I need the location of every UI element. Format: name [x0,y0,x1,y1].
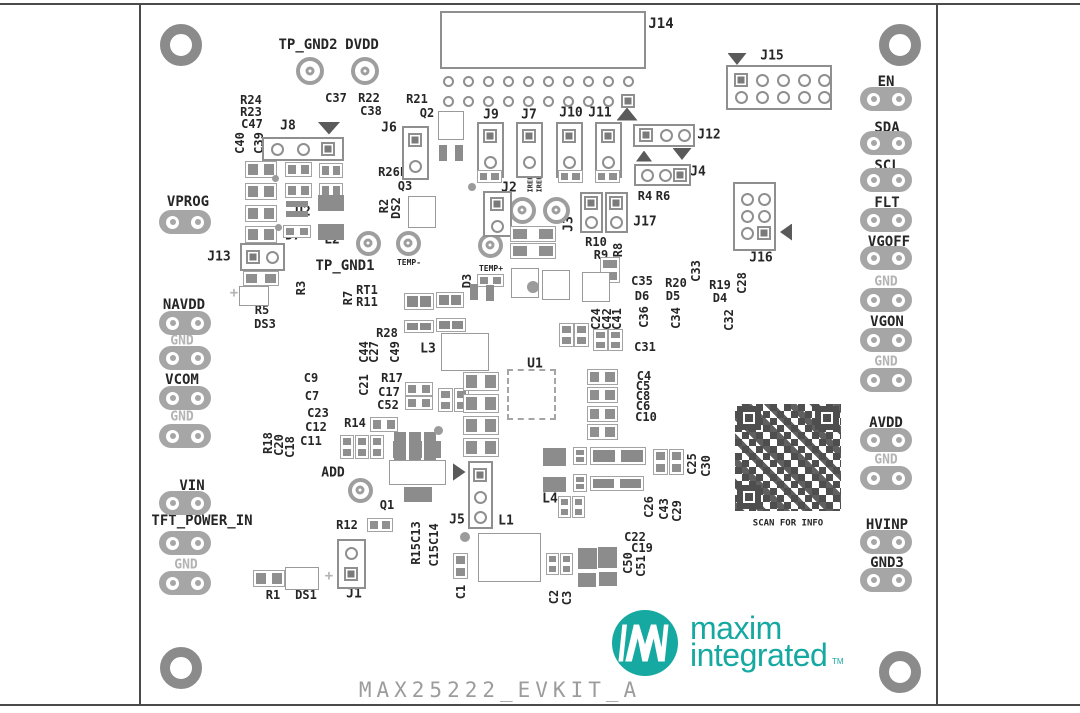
pad-hole [892,137,905,150]
silkscreen-label: R19 [709,279,731,291]
silkscreen-label: + [230,286,238,300]
pin-hole [602,156,615,169]
silkscreen-label: C36 [638,306,650,328]
smd-footprint [370,435,384,459]
smd-footprint [340,435,354,459]
silkscreen-label: TP_GND1 [315,259,374,273]
pad-hole [867,334,880,347]
smd-footprint [405,396,433,410]
smd-pad [486,285,494,301]
test-pad [860,208,912,232]
smd-footprint [453,553,468,579]
smd-pad [409,432,421,460]
smd-footprint [463,372,499,391]
silkscreen-label: C47 [241,118,263,130]
pad-hole [191,497,204,510]
pin-hole [798,91,811,104]
pad-hole [867,174,880,187]
silkscreen-label: R28 [376,327,398,339]
smd-footprint [559,323,574,347]
silkscreen-label: DS1 [295,589,317,601]
silkscreen-label: VPROG [167,195,209,209]
marker-triangle-icon [780,224,792,241]
silkscreen-label: D4 [713,292,727,304]
silkscreen-label: C15C14 [428,523,440,566]
pin-hole [758,193,771,206]
smd-pad [286,201,308,207]
smd-pad [424,432,436,460]
pin-hole [818,74,831,87]
via-ring [348,478,373,503]
pin-hole [583,96,594,107]
silkscreen-label: Q2 [420,107,434,119]
smd-pad [455,145,463,161]
pad-hole [867,434,880,447]
pin-hole [271,143,284,156]
smd-footprint [405,382,433,396]
pad-hole [166,352,179,365]
pad-hole [191,537,204,550]
silkscreen-label: C18 [284,436,296,458]
maxim-logo-icon [612,610,678,676]
marker-triangle-icon [728,53,747,65]
pin-hole [443,76,454,87]
silkscreen-label: J14 [648,17,673,31]
silkscreen-label: C11 [300,435,322,447]
smd-footprint [573,447,587,465]
pin-hole [660,129,673,142]
silkscreen-label: R11 [356,296,378,308]
smd-footprint [573,474,587,492]
pad-hole [191,392,204,405]
pin1-square [483,129,497,143]
pin1-square [757,226,771,240]
pad-hole [867,472,880,485]
pin-hole [603,76,614,87]
qr-finder-icon [815,406,839,430]
smd-footprint [593,329,608,351]
smd-pad [318,224,344,240]
silkscreen-label: C21 [358,374,370,396]
silkscreen-label: DS2 [390,197,402,219]
pad-hole [892,574,905,587]
silkscreen-label: C40 [234,132,246,154]
silkscreen-label: R10 [585,236,607,248]
test-pad [159,311,211,335]
pin-hole [543,96,554,107]
smd-capacitor [590,447,646,465]
silkscreen-label: TP_GND2 [278,38,337,52]
silkscreen-label: C29 [671,500,683,522]
test-pad [159,571,211,595]
silkscreen-label: GND [874,276,897,289]
smd-footprint [285,162,312,177]
logo-word-integrated: integrated [690,639,827,671]
silkscreen-label: C49 [389,341,401,363]
smd-pad [470,284,478,300]
pin-hole [659,169,672,182]
silkscreen-label: L1 [498,515,514,528]
pin1-square [734,73,748,87]
pin1-square [601,129,615,143]
pin-hole [345,547,358,560]
pin-hole [443,96,454,107]
silkscreen-label: J7 [521,109,537,122]
silkscreen-label: C32 [723,309,735,331]
pin1-square [673,168,687,182]
pin1-square [473,468,487,482]
test-pad [860,568,912,592]
test-pad [159,424,211,448]
smd-footprint [370,417,398,432]
pin-hole [266,251,279,264]
test-pad [159,386,211,410]
marker-triangle-icon [453,463,466,481]
marker-triangle-icon [318,122,341,135]
smd-footprint [572,496,585,518]
maxim-logo: maxim integrated TM [608,606,868,681]
logo-trademark: TM [832,658,844,666]
silkscreen-label: TEMP+ [479,265,503,273]
smd-capacitor [436,292,464,308]
smd-footprint [245,183,277,200]
board-edge-bottom [0,704,1080,706]
smd-footprint [283,225,311,238]
pin-hole [474,511,487,524]
silkscreen-label: L3 [420,343,436,356]
silkscreen-label: J16 [749,252,772,265]
pcb-board: maxim integrated TM MAX25222_EVKIT_A TP_… [0,0,1080,713]
component-outline [542,270,570,300]
silkscreen-label: C2 [548,590,560,604]
pin-hole [741,210,754,223]
pad-hole [892,252,905,265]
test-pad [159,346,211,370]
pin1-square [522,129,536,143]
pad-hole [867,536,880,549]
smd-pad [394,432,406,460]
pin1-square [246,250,260,264]
silkscreen-label: DS3 [254,318,276,330]
silkscreen-label: C25 [686,453,698,475]
component-outline [438,111,464,140]
silkscreen-label: J12 [697,129,720,142]
pin-hole [735,91,748,104]
pad-hole [191,430,204,443]
silkscreen-label: GND [170,411,193,424]
pad-hole [892,214,905,227]
silkscreen-label: C51 [635,555,647,577]
via-ring [356,231,381,256]
pin-hole [603,96,614,107]
pad-hole [892,334,905,347]
pin-hole [758,210,771,223]
pin-hole [563,156,576,169]
component-outline [239,286,269,306]
silkscreen-label: J10 [559,107,582,120]
pin-hole [756,74,769,87]
pad-hole [892,472,905,485]
test-pad [159,491,211,515]
smd-footprint [355,435,369,459]
silkscreen-label: L4 [542,493,558,506]
smd-footprint [587,369,618,385]
smd-footprint [558,170,583,183]
silkscreen-label: C38 [360,105,382,117]
pin1-square [562,129,576,143]
silkscreen-label: R21 [406,93,428,105]
silkscreen-label: GND [874,454,897,467]
pin1-square [408,133,422,147]
silkscreen-label: R1 [266,589,280,601]
mounting-hole [160,647,202,689]
smd-footprint [608,329,623,351]
pad-hole [867,214,880,227]
silkscreen-label: R26 [378,166,400,178]
silkscreen-label: NAVDD [163,298,205,312]
silkscreen-label: GND [174,559,197,572]
silkscreen-label: C17 [378,386,400,398]
via-dot [272,175,279,182]
pad-hole [867,137,880,150]
pin-hole [798,74,811,87]
silkscreen-label: R7 [342,291,354,305]
smd-footprint [587,424,618,440]
silkscreen-label: J8 [280,120,296,133]
silkscreen-label: C7 [305,390,319,402]
pcb-screenshot: { "board": { "title": "MAX25222_EVKIT_A"… [0,0,1080,713]
pad-hole [867,294,880,307]
qr-finder-icon [737,485,761,509]
marker-triangle-icon [673,148,692,160]
smd-pad [543,477,566,492]
silkscreen-label: J4 [690,166,706,179]
pad-hole [892,93,905,106]
component-outline [441,333,489,371]
pin-hole [523,76,534,87]
smd-footprint [574,323,589,347]
mounting-hole [160,24,202,66]
mounting-hole [879,24,921,66]
smd-footprint [587,387,618,403]
via-ring [509,197,536,224]
silkscreen-label: C34 [670,307,682,329]
pad-hole [867,93,880,106]
pad-hole [892,374,905,387]
pin-hole [777,91,790,104]
smd-footprint [669,449,684,475]
pad-hole [191,352,204,365]
silkscreen-label: J9 [483,109,499,122]
pad-hole [892,174,905,187]
pad-hole [867,252,880,265]
pin-hole [563,96,574,107]
smd-capacitor [436,318,466,332]
smd-capacitor [590,476,644,491]
component-outline [285,567,319,590]
board-edge-right [936,3,938,706]
pad-hole [892,434,905,447]
pad-hole [191,577,204,590]
silkscreen-label: J17 [633,216,656,229]
smd-capacitor [404,320,434,333]
silkscreen-label: R20 [665,277,687,289]
smd-footprint [438,388,453,412]
pad-hole [191,317,204,330]
pin-hole [523,156,536,169]
test-pad [860,87,912,111]
test-pad [860,368,912,392]
smd-footprint [463,394,499,413]
silkscreen-label: C37 [325,92,347,104]
smd-footprint [558,496,571,518]
silkscreen-label: R6 [656,190,670,202]
silkscreen-label: J15 [760,50,783,63]
pad-hole [166,216,179,229]
test-pad [860,328,912,352]
silkscreen-label: SCAN FOR INFO [753,520,823,529]
via-ring [543,197,570,224]
pad-hole [892,536,905,549]
via-dot [434,426,443,435]
pin-hole [483,76,494,87]
pin1-square [490,197,504,211]
silkscreen-label: J5 [449,514,465,527]
pin-hole [610,216,623,229]
via-dot [527,281,539,293]
test-pad [860,288,912,312]
pad-hole [166,317,179,330]
smd-footprint [560,553,573,575]
silkscreen-label: Q3 [398,180,412,192]
via-ring [396,231,421,256]
pad-hole [166,577,179,590]
silkscreen-label: R17 [381,372,403,384]
smd-pad [318,195,344,211]
smd-footprint [587,406,618,422]
pad-hole [166,430,179,443]
test-pad [159,210,211,234]
smd-capacitor [404,293,434,310]
smd-pad [578,548,597,569]
pin-hole [503,96,514,107]
silkscreen-label: R8 [612,243,624,257]
smd-pad [599,572,617,586]
smd-footprint [245,205,277,222]
silkscreen-label: GND [874,356,897,369]
component-outline [389,460,446,485]
silkscreen-label: R12 [336,519,358,531]
silkscreen-label: TEMP- [397,259,421,267]
test-pad [860,466,912,490]
pin1-square [609,196,623,210]
smd-footprint [653,449,668,475]
pad-hole [166,392,179,405]
mounting-hole [879,651,921,693]
pad-hole [191,216,204,229]
qr-finder-icon [737,406,761,430]
smd-footprint [546,553,559,575]
silkscreen-label: R14 [344,417,366,429]
board-edge-top [0,3,1080,5]
smd-pad [543,448,566,466]
via-dot [275,224,282,231]
silkscreen-label: C12 [305,421,327,433]
via-ring [296,57,324,85]
pin-hole [563,76,574,87]
silkscreen-label: D6 [635,290,649,302]
test-pad [860,131,912,155]
silkscreen-label: Q1 [380,499,394,511]
pad-hole [166,497,179,510]
via-dot [468,183,476,191]
via-dot [460,532,470,542]
component-outline [478,533,541,582]
pin-hole [543,76,554,87]
silkscreen-label: C33 [690,260,702,282]
pin-hole [297,143,310,156]
silkscreen-label: R22 [358,92,380,104]
board-title: MAX25222_EVKIT_A [359,678,641,702]
pin-hole [483,96,494,107]
pin1-square [321,142,335,156]
pin-hole [503,76,514,87]
component-outline [582,272,610,302]
silkscreen-label: R4 [638,190,652,202]
board-edge-left [139,3,141,706]
silkscreen-label: R15C13 [410,521,422,564]
silkscreen-label: J13 [207,251,230,264]
silkscreen-label: C50 [622,552,634,574]
test-pad [860,168,912,192]
smd-footprint [595,170,620,183]
test-pad [860,530,912,554]
marker-triangle-icon [636,151,652,162]
smd-footprint [243,271,279,286]
silkscreen-label: J6 [381,122,397,135]
silkscreen-label: C26 [643,496,655,518]
connector [440,11,646,69]
pin-hole [741,193,754,206]
silkscreen-label: C28 [736,272,748,294]
pin-hole [678,129,691,142]
pin-hole [741,227,754,240]
silkscreen-label: C9 [304,372,318,384]
qr-code [735,404,841,511]
silkscreen-label: DVDD [345,38,379,52]
silkscreen-label: C43 [658,498,670,520]
test-pad [159,531,211,555]
silkscreen-label: C23 [307,407,329,419]
pin-hole [474,491,487,504]
pin1-square [344,567,358,581]
pin-hole [641,169,654,182]
silkscreen-label: C52 [377,399,399,411]
pin-hole [777,74,790,87]
silkscreen-label: VGON [870,315,904,329]
smd-pad [286,211,308,217]
silkscreen-label: J11 [588,107,611,120]
marker-triangle-icon [617,108,638,121]
silkscreen-label: VCOM [165,373,199,387]
pin-hole [463,76,474,87]
component-outline [507,369,556,420]
silkscreen-label: D5 [666,290,680,302]
silkscreen-label: + [325,569,333,583]
pin1-square [639,128,653,142]
pin1-square [621,94,635,108]
pad-hole [892,294,905,307]
